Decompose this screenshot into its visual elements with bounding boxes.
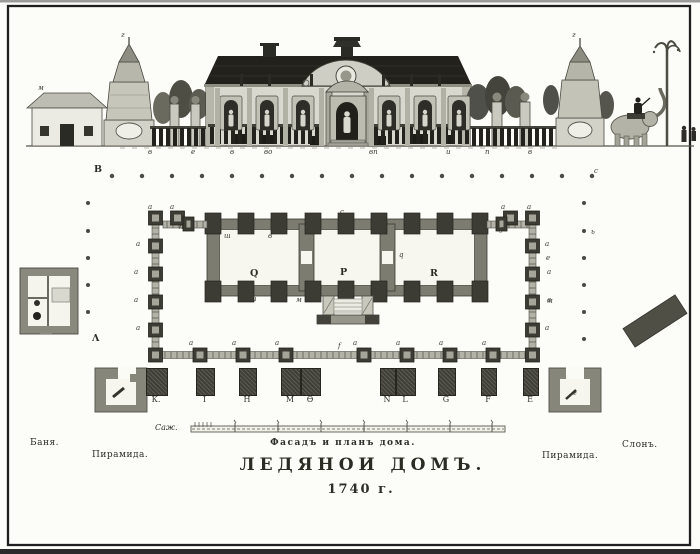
fence-letter: а <box>547 269 551 276</box>
facade-letter: г <box>572 32 576 39</box>
facade-letter: е <box>191 149 195 156</box>
fence-letter: а <box>136 325 140 332</box>
cannon-label: G <box>443 396 449 404</box>
plan-letter: Λ <box>92 334 99 344</box>
fence-letter: а <box>353 340 357 347</box>
cannon-label: N <box>384 396 391 404</box>
plan-letter: Q <box>250 269 258 279</box>
plan-letter: P <box>340 268 347 278</box>
facade-letter: п <box>485 149 490 156</box>
cannon-label: F <box>485 396 491 404</box>
facade-letter: в <box>148 149 152 156</box>
plate-title: ЛЕДЯНОИ ДОМЪ. <box>240 455 487 475</box>
facade-letter: м <box>38 85 44 92</box>
fence-letter: а <box>396 340 400 347</box>
plan-letter: е <box>546 255 550 262</box>
fence-letter: а <box>136 241 140 248</box>
cannon-block <box>146 368 168 396</box>
fence-letter: а <box>482 340 486 347</box>
scale-unit-label: Саж. <box>155 423 178 432</box>
plan-letter: c <box>594 168 598 175</box>
plan-letter: B <box>94 165 102 175</box>
cannon-block <box>396 368 416 396</box>
label-bath: Баня. <box>30 438 59 448</box>
cannon-label: Е <box>527 396 533 404</box>
plan-letter: и <box>252 296 257 303</box>
fence-letter: а <box>527 204 531 211</box>
cannon-label: К. <box>152 396 161 404</box>
facade-letter: в <box>230 149 234 156</box>
cannon-block <box>380 368 396 396</box>
plan-letter: R <box>430 269 438 279</box>
facade-letter: г <box>121 32 125 39</box>
figure-caption: Фасадъ и планъ дома. <box>270 438 416 448</box>
facade-letter: во <box>264 149 272 156</box>
plate-year: 1740 г. <box>327 482 394 497</box>
cannon-block <box>196 368 215 396</box>
fence-letter: а <box>439 340 443 347</box>
fence-letter: а <box>189 340 193 347</box>
cannon-block <box>239 368 257 396</box>
plan-letter: g <box>499 226 503 233</box>
cannon-block <box>281 368 301 396</box>
plan-letter: b <box>340 287 344 294</box>
fence-letter: а <box>275 340 279 347</box>
plan-letter: q <box>399 252 403 259</box>
fence-letter: а <box>232 340 236 347</box>
cannon-block <box>523 368 539 396</box>
fence-letter: а <box>547 297 551 304</box>
plan-letter: ь <box>591 229 595 236</box>
plan-letter: г <box>573 390 577 397</box>
fence-letter: а <box>148 204 152 211</box>
fence-letter: а <box>134 297 138 304</box>
plan-letter: в <box>268 233 272 240</box>
plan-letter: c <box>340 209 344 216</box>
fence-letter: а <box>170 204 174 211</box>
plan-letter: f <box>338 343 341 350</box>
fence-letter: а <box>501 204 505 211</box>
facade-letter: в <box>528 149 532 156</box>
label-elephant: Слонъ. <box>622 440 658 450</box>
cannon-label: М <box>286 396 294 404</box>
cannon-block <box>438 368 456 396</box>
cannon-label: Ѳ <box>307 396 314 404</box>
cannon-block <box>301 368 321 396</box>
text-overlay: Фасадъ и планъ дома. ЛЕДЯНОИ ДОМЪ. 1740 … <box>0 0 700 554</box>
facade-letter: вп <box>369 149 378 156</box>
cannon-label: L <box>402 396 407 404</box>
cannon-block <box>481 368 497 396</box>
plan-letter: ш <box>224 233 231 240</box>
cannon-label: I <box>203 396 206 404</box>
fence-letter: а <box>545 241 549 248</box>
label-pyramid-left: Пирамида. <box>92 450 148 460</box>
label-pyramid-right: Пирамида. <box>542 451 598 461</box>
fence-letter: а <box>134 269 138 276</box>
facade-letter: и <box>446 149 451 156</box>
plan-letter: м <box>296 297 302 304</box>
plan-letter: h <box>179 224 184 231</box>
engraving-plate: Фасадъ и планъ дома. ЛЕДЯНОИ ДОМЪ. 1740 … <box>0 0 700 554</box>
fence-letter: а <box>545 325 549 332</box>
cannon-label: Н <box>244 396 251 404</box>
